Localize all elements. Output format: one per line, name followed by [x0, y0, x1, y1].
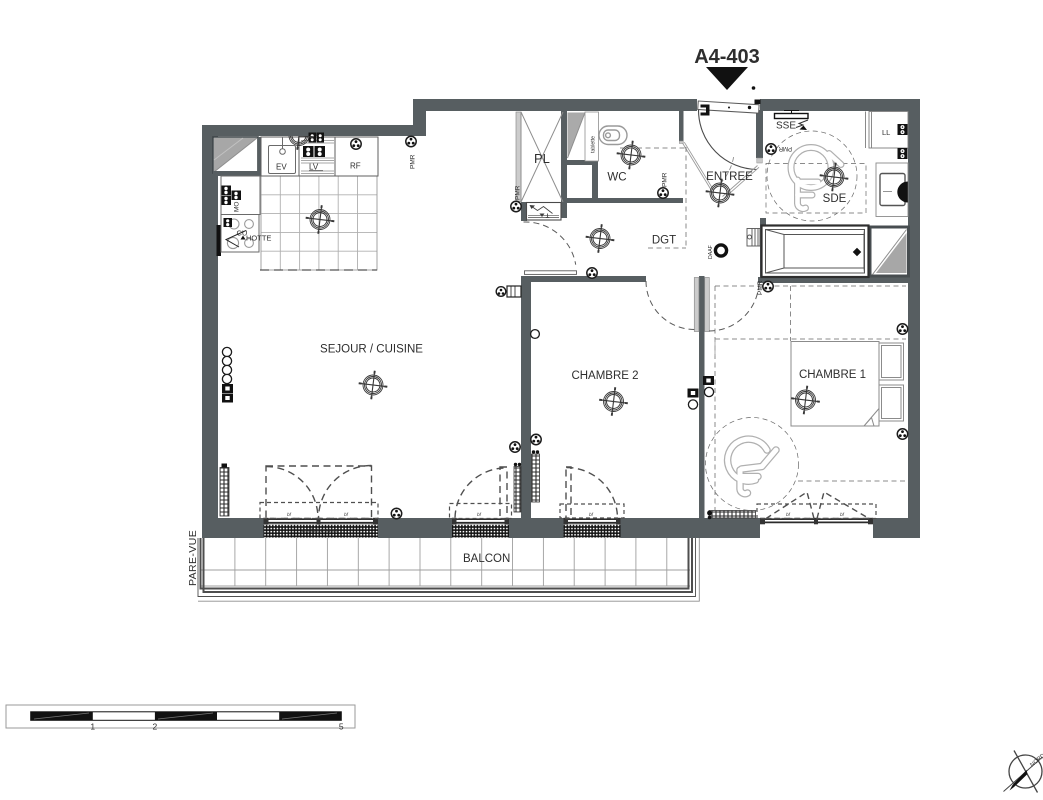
svg-text:A4-403: A4-403 [694, 46, 760, 68]
svg-text:1: 1 [90, 722, 95, 732]
svg-text:HOTTE: HOTTE [246, 234, 271, 243]
svg-text:SDE: SDE [823, 193, 847, 205]
svg-text:SSE: SSE [776, 121, 796, 132]
svg-text:WC: WC [607, 172, 626, 184]
svg-text:SEJOUR / CUISINE: SEJOUR / CUISINE [320, 344, 423, 356]
svg-text:MO: MO [234, 202, 241, 212]
svg-text:EV: EV [276, 163, 287, 172]
svg-text:ventilation basse: ventilation basse [301, 528, 338, 534]
svg-text:DGT: DGT [652, 235, 676, 247]
svg-text:PMR: PMR [778, 145, 792, 151]
svg-text:CHAMBRE 2: CHAMBRE 2 [571, 370, 638, 382]
svg-text:LL: LL [882, 128, 890, 137]
svg-text:5: 5 [339, 722, 344, 732]
svg-text:PMR: PMR [757, 280, 764, 295]
svg-text:LV: LV [309, 163, 319, 172]
svg-text:PMR: PMR [410, 154, 417, 169]
svg-text:PMR: PMR [662, 172, 669, 187]
svg-text:RF: RF [350, 162, 361, 171]
svg-text:tablette: tablette [591, 136, 597, 153]
svg-text:BALCON: BALCON [463, 553, 510, 565]
svg-text:2: 2 [153, 722, 158, 732]
svg-text:CHAMBRE 1: CHAMBRE 1 [799, 369, 866, 381]
svg-text:DAAF: DAAF [708, 245, 714, 259]
svg-text:ENTREE: ENTREE [706, 171, 753, 183]
svg-text:PL: PL [534, 151, 550, 166]
svg-text:PMR: PMR [515, 185, 522, 200]
svg-text:PARE-VUE: PARE-VUE [187, 530, 199, 586]
